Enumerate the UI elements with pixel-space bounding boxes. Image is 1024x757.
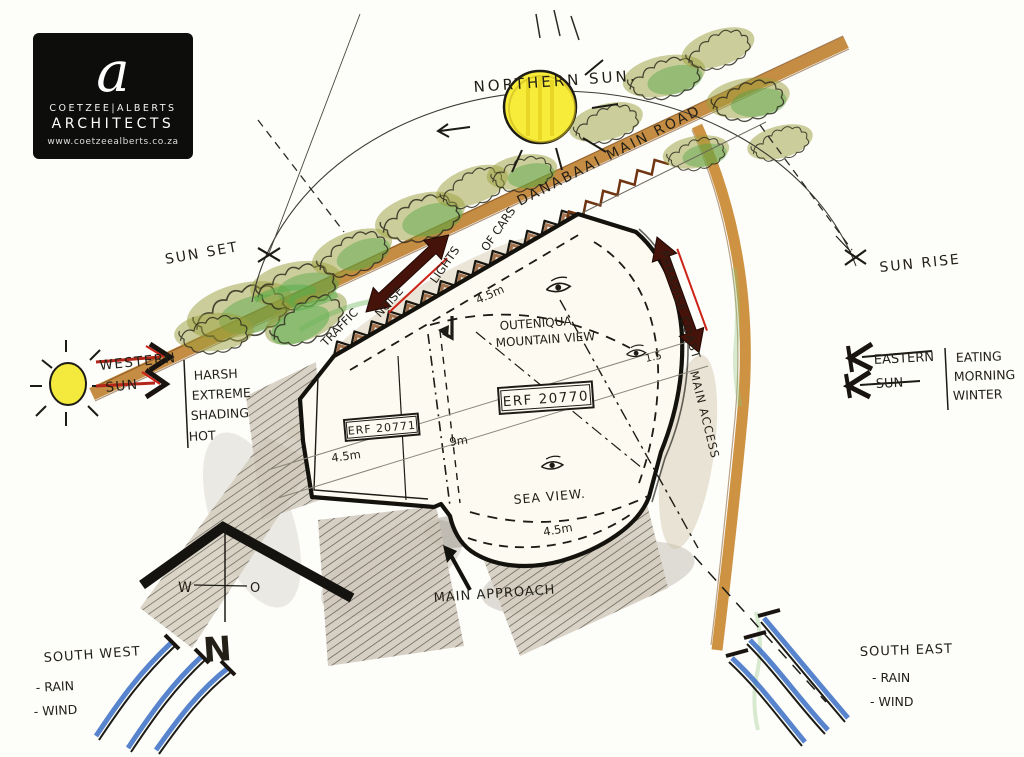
logo-firm-name: COETZEE|ALBERTS [49, 103, 176, 114]
east-sun-divider [945, 348, 948, 410]
compass-west-label: W [178, 580, 192, 596]
se-wind-title: SOUTH EAST [860, 642, 954, 660]
architect-logo: a COETZEE|ALBERTS ARCHITECTS www.coetzee… [33, 33, 193, 159]
west-note-shading: SHADING [190, 405, 249, 423]
west-note-harsh: HARSH [193, 366, 238, 383]
western-sun-label-2: SUN [105, 377, 140, 396]
dim-9m: 9m [448, 433, 468, 449]
west-sun-divider [184, 360, 188, 448]
compass-north-label: N [202, 629, 233, 671]
se-wind-arrows [726, 610, 848, 746]
west-note-extreme: EXTREME [191, 385, 251, 403]
eastern-sun-label-1: EASTERN [873, 350, 934, 368]
east-note-eating: EATING [956, 348, 1002, 365]
se-wind-wind: - WIND [870, 694, 914, 709]
logo-firm-type: ARCHITECTS [52, 116, 175, 132]
logo-website: www.coetzeealberts.co.za [47, 137, 178, 147]
sw-wind-wind: - WIND [33, 702, 77, 719]
site-analysis-sketch: ERF 20770 ERF 20771 NORTHERN SUN. DANABA… [0, 0, 1024, 757]
east-note-morning: MORNING [954, 367, 1016, 384]
east-note-winter: WINTER [953, 386, 1003, 403]
eastern-sun-label-2: SUN [875, 376, 903, 392]
sunset-label: SUN SET [164, 239, 240, 268]
sunrise-label: SUN RISE [879, 252, 962, 276]
sw-wind-title: SOUTH WEST [43, 644, 141, 666]
erf-20770-label: ERF 20770 [498, 381, 594, 413]
sunrise-marker [836, 236, 866, 265]
compass-east-label: O [250, 581, 260, 596]
west-note-hot: HOT [188, 428, 216, 444]
sw-wind-rain: - RAIN [35, 678, 74, 695]
logo-letter: a [96, 45, 129, 101]
western-sun-icon [30, 340, 106, 426]
se-wind-rain: - RAIN [872, 670, 910, 685]
